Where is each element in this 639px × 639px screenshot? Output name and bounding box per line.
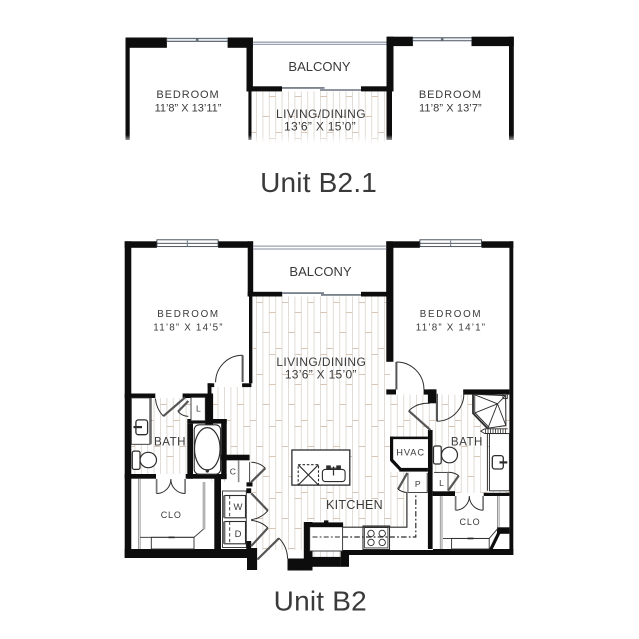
svg-text:BEDROOM: BEDROOM (156, 89, 219, 101)
svg-text:HVAC: HVAC (396, 448, 425, 458)
svg-text:KITCHEN: KITCHEN (326, 498, 383, 512)
svg-text:C: C (230, 466, 236, 476)
svg-text:BATH: BATH (154, 435, 186, 448)
svg-text:BEDROOM: BEDROOM (419, 89, 482, 101)
svg-text:11’8” X 13’7”: 11’8” X 13’7” (419, 102, 482, 114)
svg-text:CLO: CLO (161, 510, 182, 520)
svg-text:P: P (415, 479, 421, 489)
svg-text:11’8” X 14’1”: 11’8” X 14’1” (416, 323, 486, 334)
svg-text:13’6” X 15’0”: 13’6” X 15’0” (284, 120, 356, 134)
svg-text:CLO: CLO (460, 517, 481, 527)
svg-text:Unit B2: Unit B2 (274, 586, 367, 617)
svg-text:BALCONY: BALCONY (288, 59, 350, 74)
svg-text:BEDROOM: BEDROOM (420, 309, 483, 320)
svg-text:D: D (235, 529, 242, 540)
svg-text:BEDROOM: BEDROOM (157, 309, 220, 320)
svg-text:W: W (234, 502, 243, 513)
svg-text:BATH: BATH (451, 435, 483, 448)
svg-text:L: L (196, 404, 201, 414)
svg-text:BALCONY: BALCONY (289, 264, 351, 279)
svg-text:Unit B2.1: Unit B2.1 (260, 167, 377, 198)
svg-text:11’8” X 13’11”: 11’8” X 13’11” (155, 102, 222, 114)
svg-text:L: L (439, 478, 444, 488)
svg-text:11’8” X 14’5”: 11’8” X 14’5” (153, 323, 223, 334)
svg-text:13’6” X 15’0”: 13’6” X 15’0” (285, 368, 357, 382)
